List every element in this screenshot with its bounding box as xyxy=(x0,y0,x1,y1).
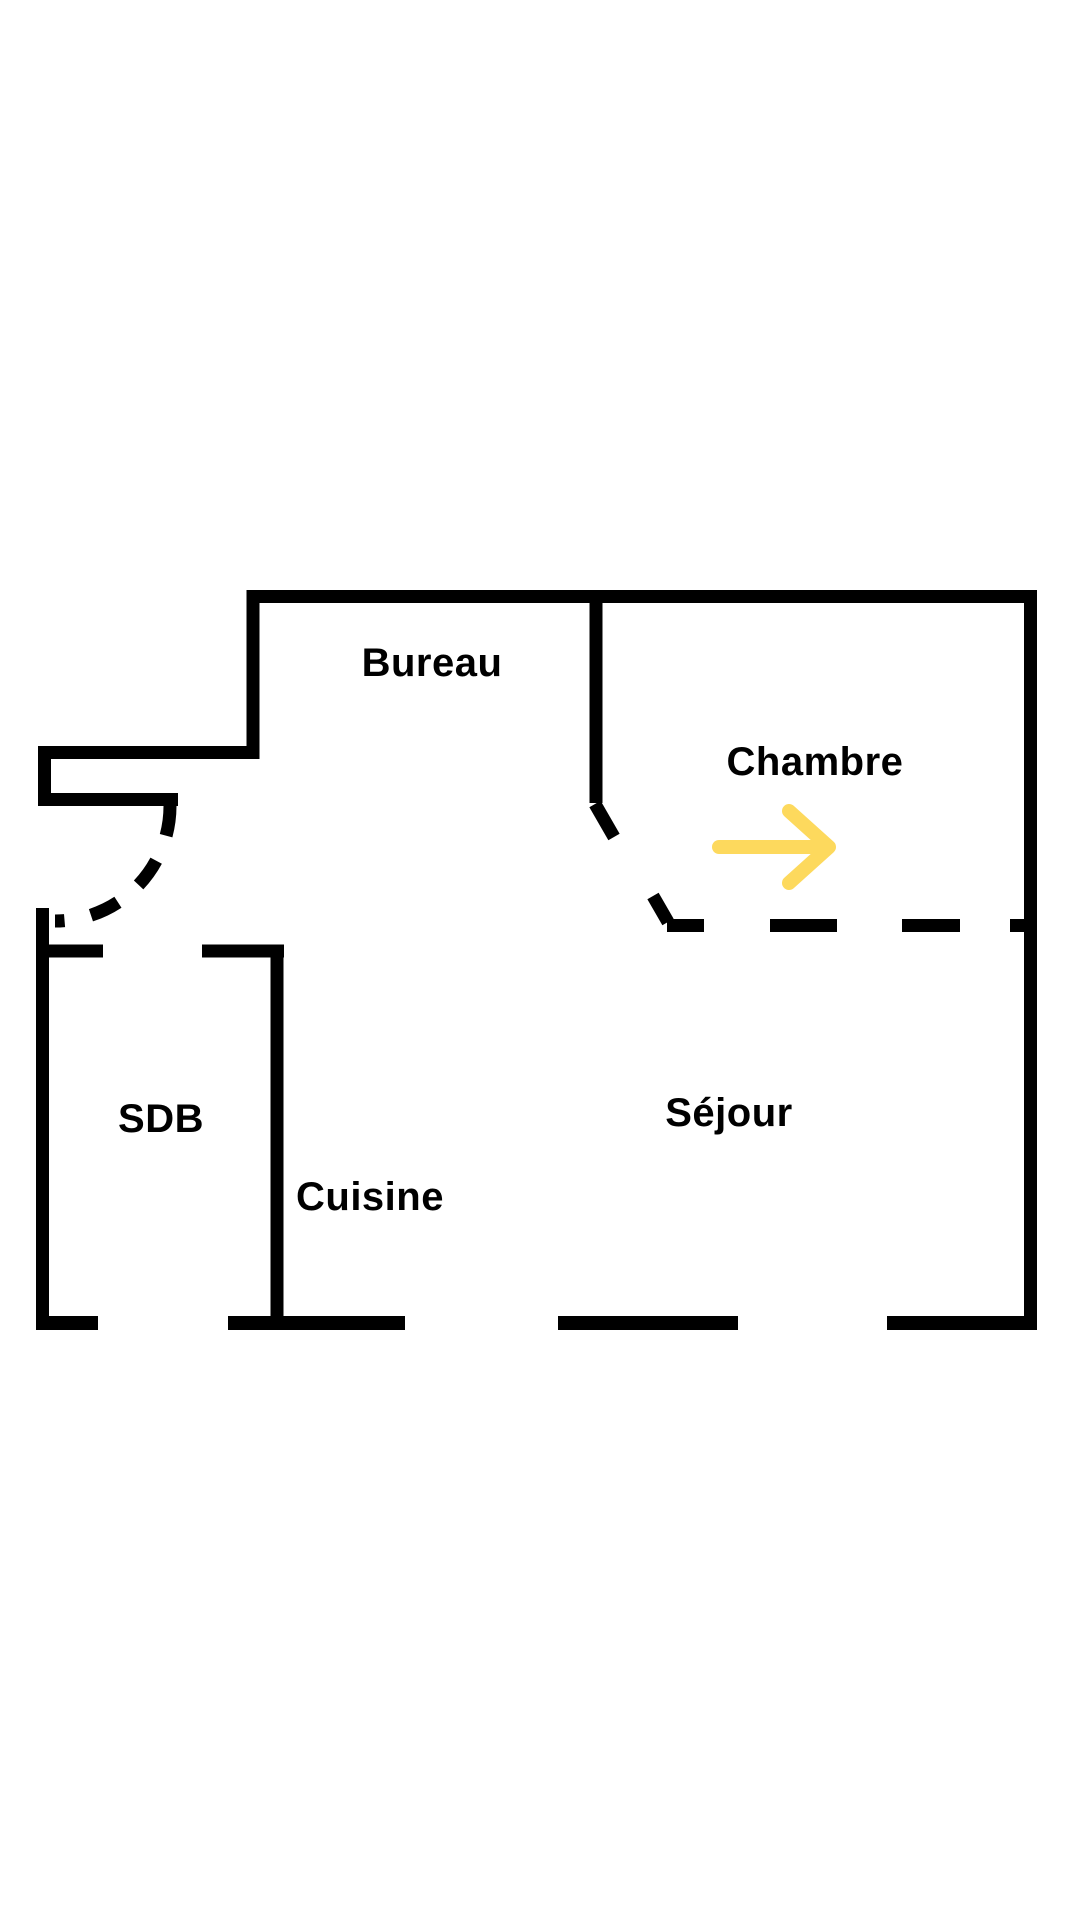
entry-door-arc xyxy=(55,806,170,921)
room-label-sejour: Séjour xyxy=(665,1091,792,1135)
room-label-chambre: Chambre xyxy=(727,740,904,784)
floor-plan-page: Bureau Chambre SDB Cuisine Séjour xyxy=(0,0,1080,1920)
chambre-door-leaf xyxy=(653,896,668,922)
walls-group xyxy=(36,590,1037,1330)
bureau-door-leaf xyxy=(595,804,614,837)
room-label-cuisine: Cuisine xyxy=(296,1175,444,1219)
direction-arrow-right-icon xyxy=(719,811,829,883)
floor-plan-canvas: Bureau Chambre SDB Cuisine Séjour xyxy=(0,0,1080,1920)
room-label-sdb: SDB xyxy=(118,1097,204,1141)
room-label-bureau: Bureau xyxy=(362,641,503,685)
